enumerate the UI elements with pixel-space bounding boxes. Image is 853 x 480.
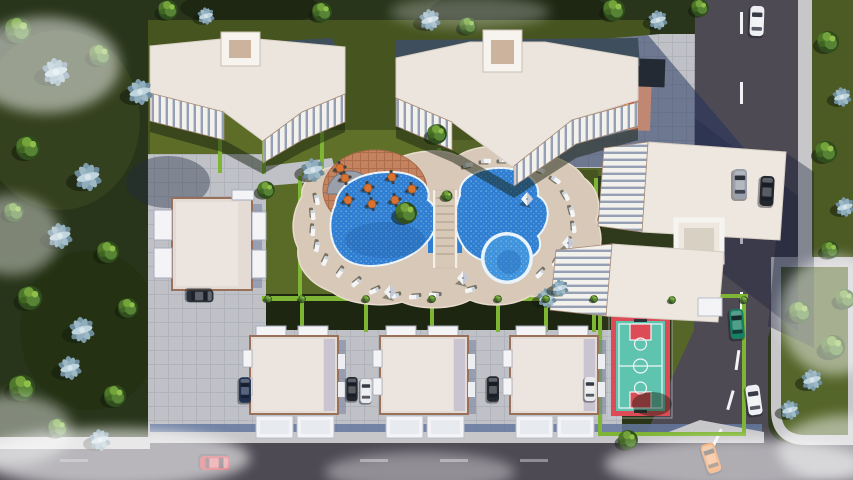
car <box>185 288 214 302</box>
balcony <box>154 210 172 240</box>
roof-step <box>698 298 722 316</box>
hoop-north <box>634 319 647 322</box>
car <box>727 309 745 342</box>
scene-canvas: Aerial 3D render of a residential comple… <box>0 0 853 480</box>
car <box>731 169 747 201</box>
court-tree-shadow <box>632 392 672 416</box>
roof-lit <box>176 202 238 286</box>
balcony-fins <box>598 142 648 232</box>
aerial-render: Aerial 3D render of a residential comple… <box>0 0 853 480</box>
car <box>583 377 596 403</box>
top-notch <box>232 190 254 200</box>
car <box>345 377 358 403</box>
balcony <box>252 212 266 240</box>
car <box>359 379 372 405</box>
car <box>485 376 499 403</box>
basketball-court <box>609 314 672 418</box>
kids-pool-shade <box>497 250 521 274</box>
rooftop-courtyard <box>491 40 514 64</box>
car <box>237 377 251 404</box>
car <box>757 176 775 209</box>
balcony <box>252 250 266 278</box>
rooftop-courtyard <box>229 40 251 58</box>
car <box>747 6 764 39</box>
pool-depth-shade <box>345 222 425 258</box>
balcony <box>154 248 172 278</box>
east-apartment-lower <box>550 244 724 322</box>
